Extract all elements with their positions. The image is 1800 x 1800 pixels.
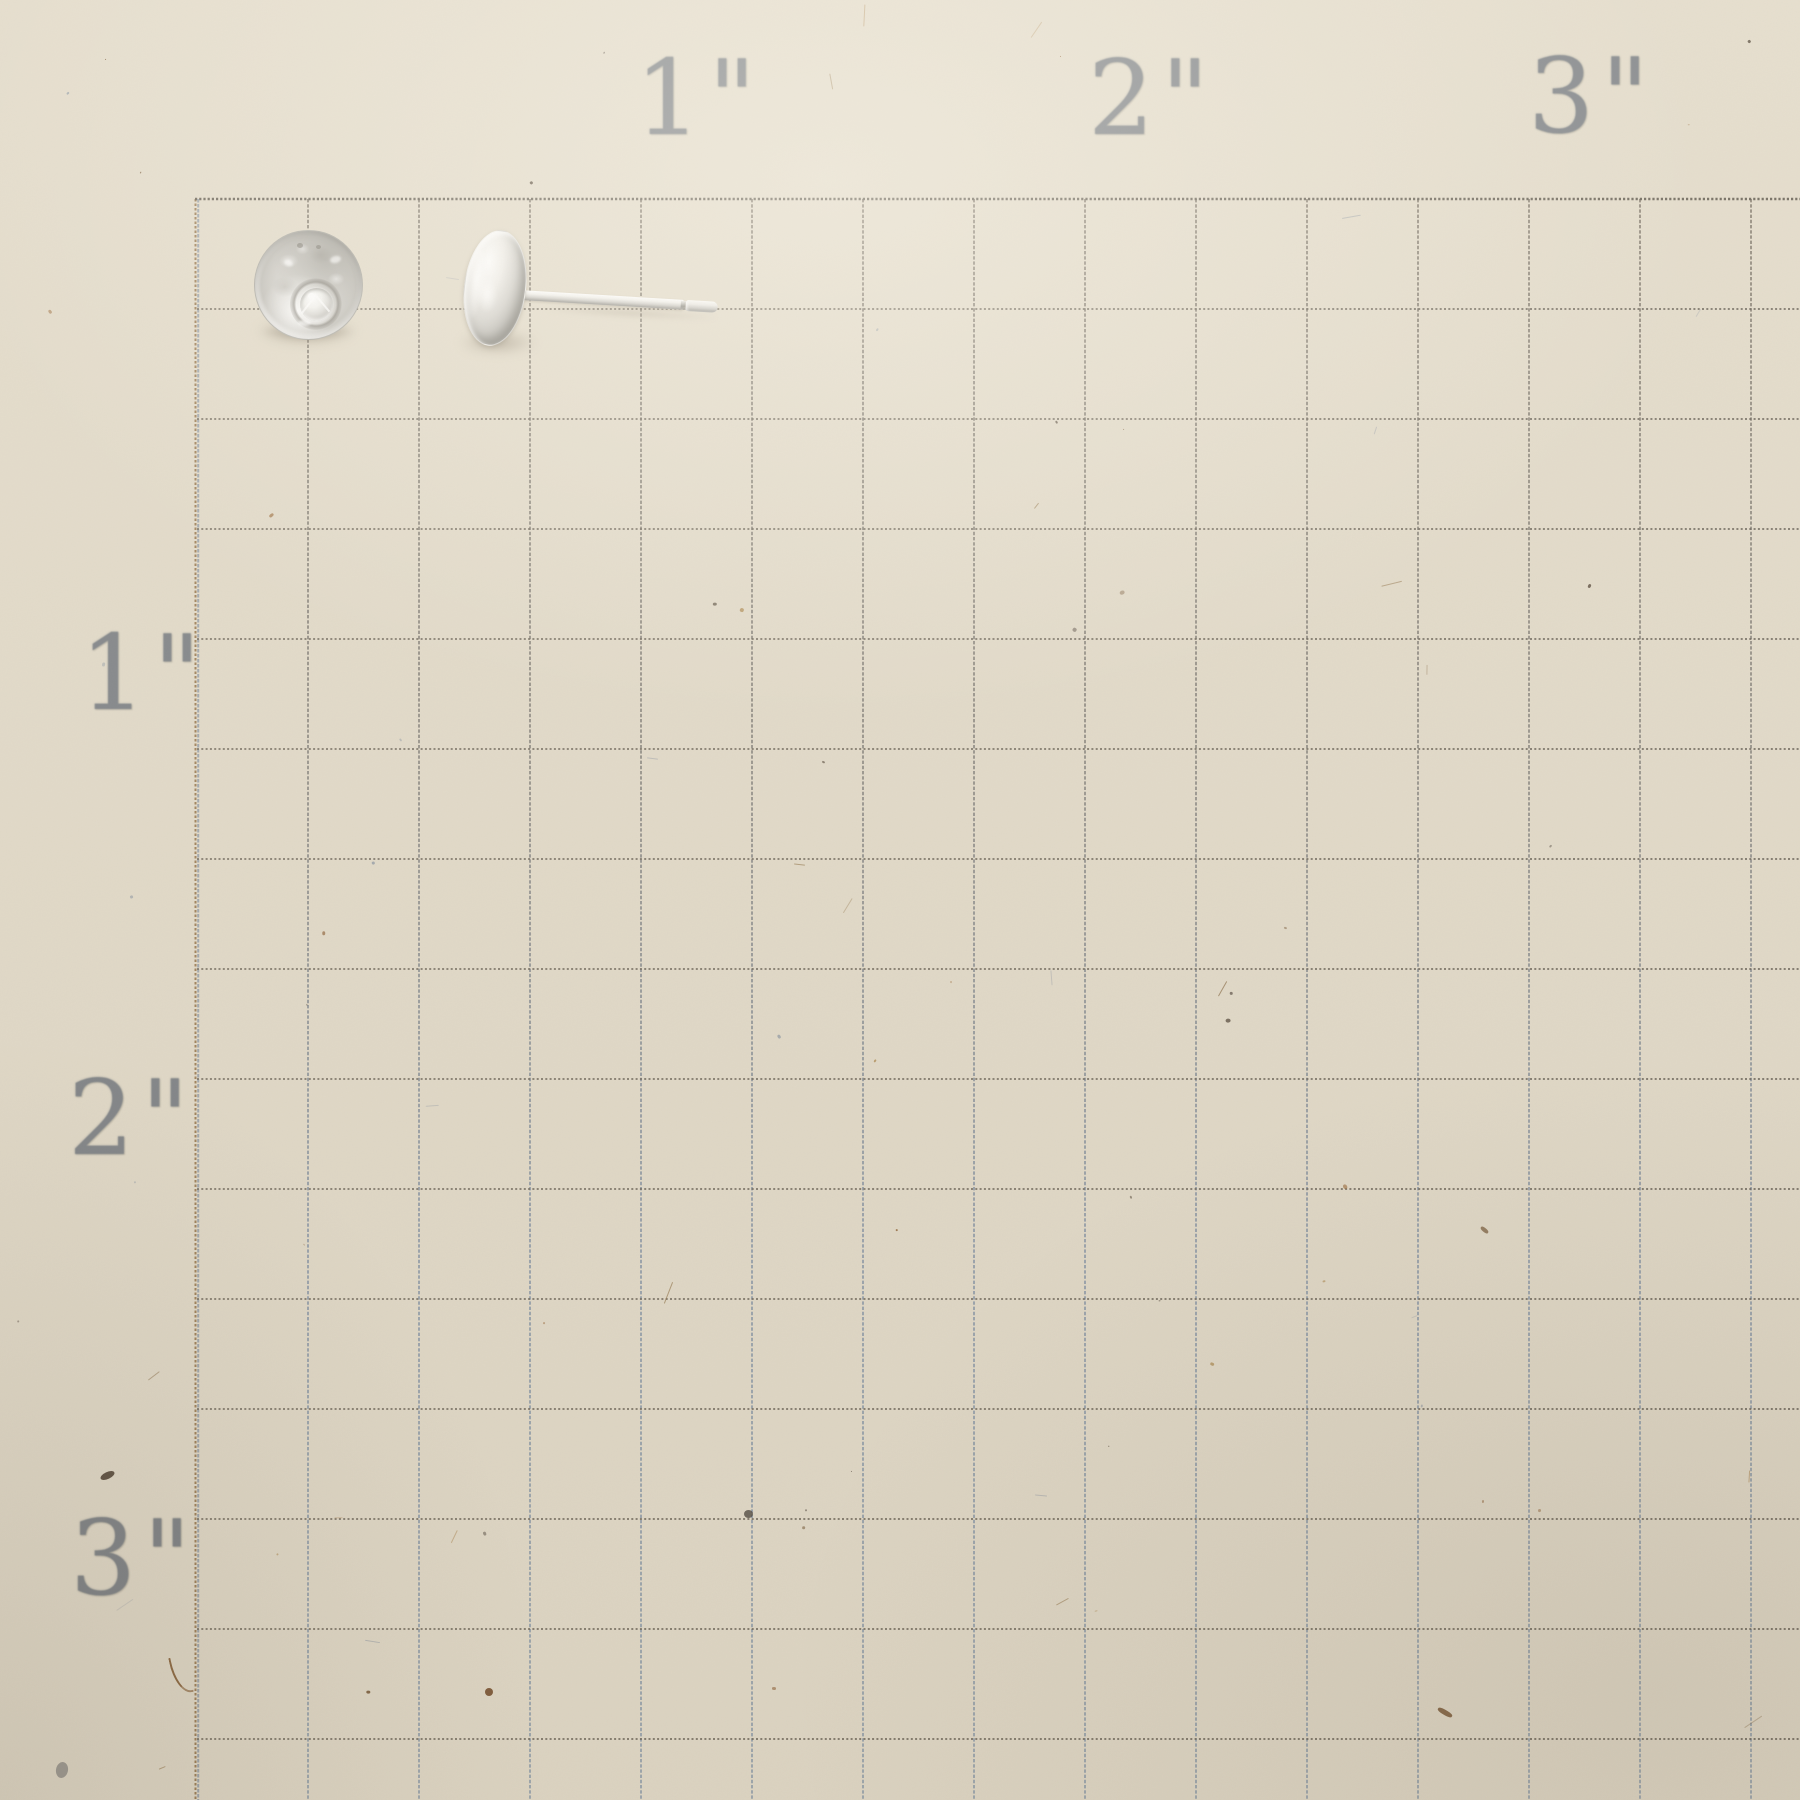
ruler-left-label-3in: 3" — [70, 1506, 198, 1610]
gem-sparkle — [308, 293, 315, 299]
product-photo-measuring-grid: 1" 2" 3" 1" 2" 3" — [0, 0, 1800, 1800]
ruler-top-label-3in: 3" — [1528, 44, 1656, 148]
silver-glint — [298, 320, 311, 326]
ruler-left-label-2in: 2" — [68, 1066, 196, 1170]
ruler-top-label-2in: 2" — [1088, 46, 1216, 150]
dome-specular-highlight — [477, 276, 497, 312]
ruler-top-label-1in: 1" — [635, 46, 763, 150]
hammer-dimple — [297, 243, 303, 248]
ruler-left-label-1in: 1" — [80, 621, 208, 725]
post-tip — [685, 300, 718, 313]
hammer-dimple — [316, 245, 321, 249]
inset-gemstone — [300, 288, 333, 321]
